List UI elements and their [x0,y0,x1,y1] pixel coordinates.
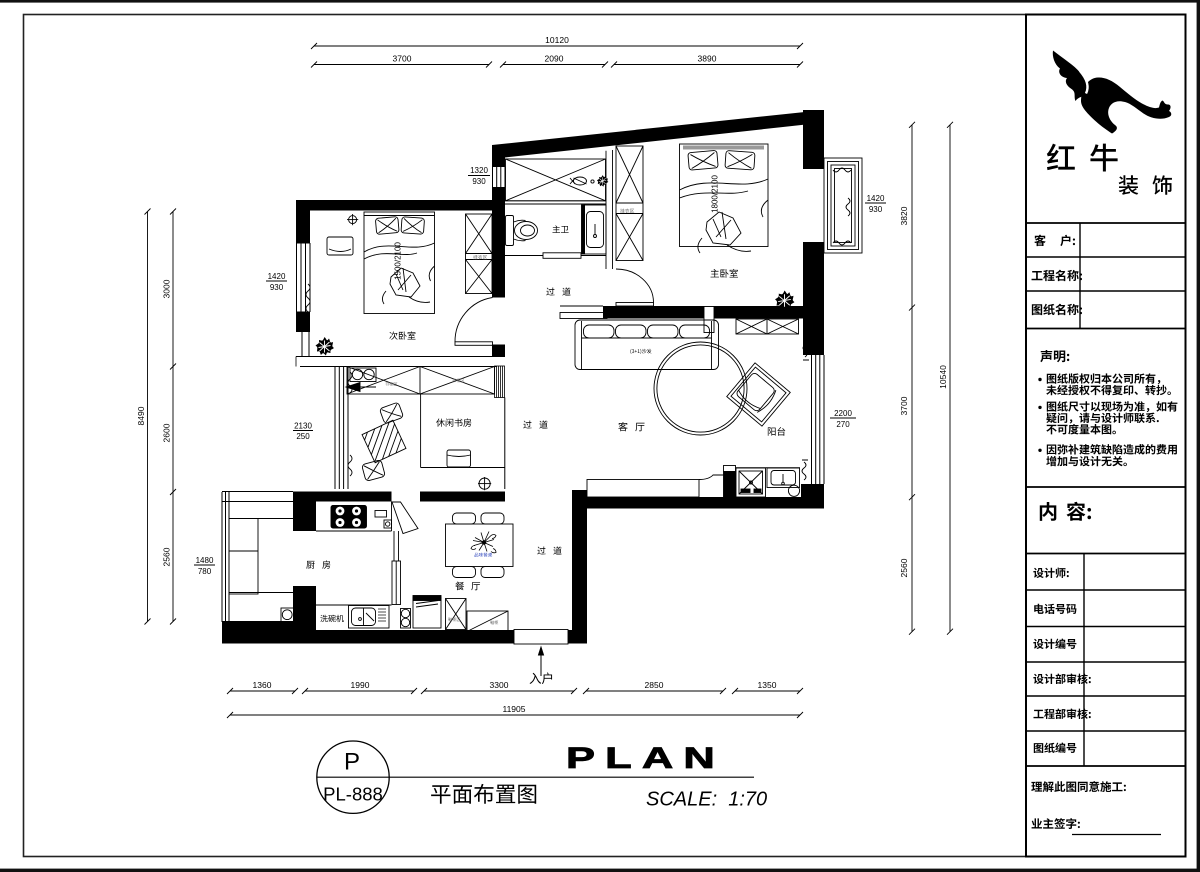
svg-text:3300: 3300 [490,680,509,690]
svg-text:2850: 2850 [645,680,664,690]
svg-text:270: 270 [836,420,850,429]
svg-text:SCALE: 1:70: SCALE: 1:70 [646,789,767,811]
svg-text:11905: 11905 [502,704,525,714]
svg-text:PLAN: PLAN [566,741,725,775]
svg-text:1800/2100: 1800/2100 [711,175,720,213]
svg-text:930: 930 [270,283,284,292]
svg-text:2600: 2600 [162,423,172,442]
svg-text:2130: 2130 [294,422,312,431]
svg-text:2560: 2560 [899,558,909,577]
svg-text:250: 250 [296,432,310,441]
svg-text:1320: 1320 [470,166,488,175]
svg-text:2090: 2090 [545,54,564,64]
svg-text:3700: 3700 [393,54,412,64]
svg-text:PL-888: PL-888 [323,784,383,805]
svg-text:2560: 2560 [162,547,172,566]
svg-text:1420: 1420 [268,272,286,281]
svg-text:1420: 1420 [867,194,885,203]
svg-text:930: 930 [472,177,486,186]
svg-text:3890: 3890 [698,54,717,64]
svg-text:10120: 10120 [545,35,569,45]
svg-text:2200: 2200 [834,409,852,418]
svg-text:1480: 1480 [196,556,214,565]
svg-text:780: 780 [198,567,212,576]
svg-text:10540: 10540 [938,365,948,389]
svg-text:P: P [344,749,360,776]
svg-text:1500/2100: 1500/2100 [394,242,403,280]
svg-text:3000: 3000 [162,279,172,298]
svg-text:3700: 3700 [899,396,909,415]
svg-text:1360: 1360 [253,680,272,690]
svg-text:1990: 1990 [351,680,370,690]
svg-text:930: 930 [869,205,883,214]
svg-text:3820: 3820 [899,206,909,225]
svg-text:8490: 8490 [136,406,146,425]
svg-text:1350: 1350 [758,680,777,690]
